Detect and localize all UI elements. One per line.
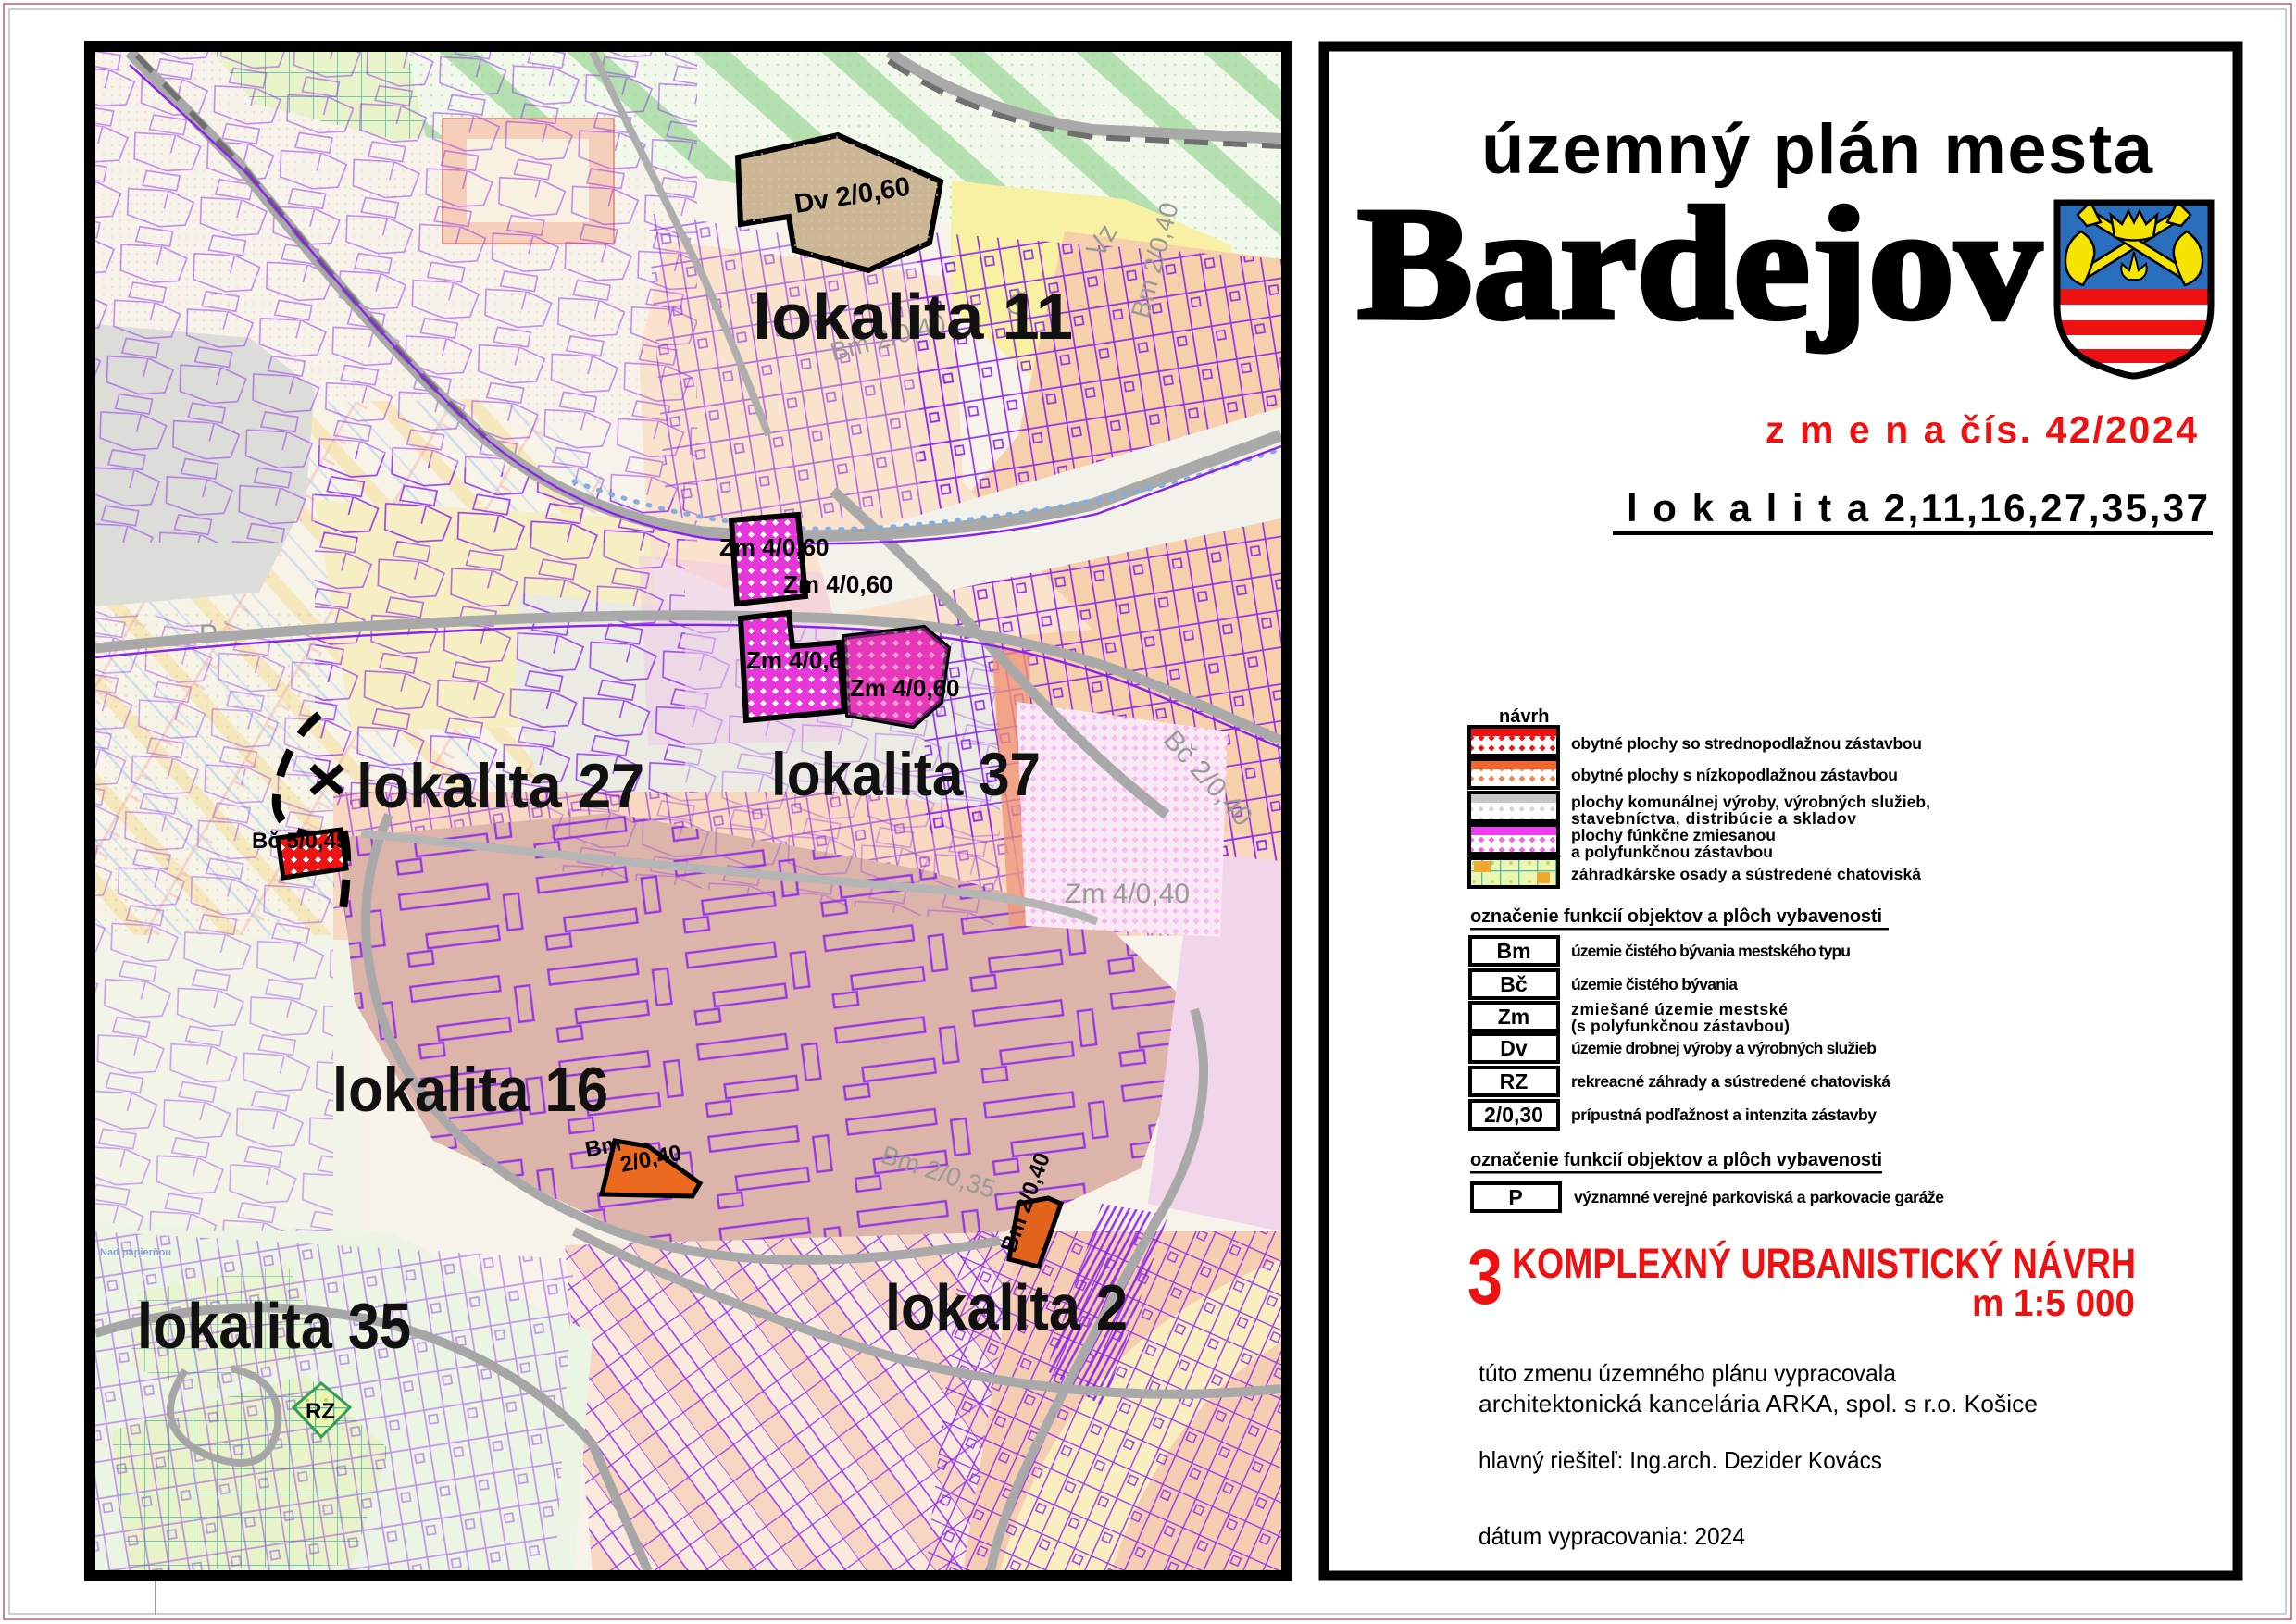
svg-text:Zm 4/0,60: Zm 4/0,60 (719, 533, 830, 561)
svg-text:dátum vypracovania: 2024: dátum vypracovania: 2024 (1479, 1522, 1745, 1550)
svg-text:a polyfunkčnou zástavbou: a polyfunkčnou zástavbou (1571, 843, 1773, 861)
svg-text:Bm: Bm (1496, 939, 1530, 963)
svg-text:označenie funkcií objektov a p: označenie funkcií objektov a plôch vybav… (1470, 906, 1882, 927)
svg-text:stavebníctva, distribúcie a sk: stavebníctva, distribúcie a skladov (1571, 809, 1856, 828)
svg-text:Zm 4/0,40: Zm 4/0,40 (1065, 879, 1190, 909)
svg-text:lokalita 27: lokalita 27 (356, 751, 644, 821)
svg-text:záhradkárske osady a sústreden: záhradkárske osady a sústredené chatovis… (1571, 865, 1921, 883)
svg-text:architektonická kancelária ARK: architektonická kancelária ARKA, spol. s… (1479, 1390, 2038, 1418)
svg-text:územie čistého bývania mestské: územie čistého bývania mestského typu (1571, 942, 1851, 960)
svg-text:lokalita 16: lokalita 16 (332, 1055, 608, 1125)
svg-text:návrh: návrh (1499, 706, 1549, 727)
svg-text:označenie funkcií objektov a p: označenie funkcií objektov a plôch vybav… (1470, 1150, 1882, 1170)
svg-text:KOMPLEXNÝ URBANISTICKÝ NÁVRH: KOMPLEXNÝ URBANISTICKÝ NÁVRH (1512, 1240, 2136, 1287)
svg-text:Bč 5/0,45: Bč 5/0,45 (252, 829, 348, 854)
svg-text:RZ: RZ (306, 1399, 335, 1424)
svg-text:obytné plochy s nízkopodlažnou: obytné plochy s nízkopodlažnou zástavbou (1571, 766, 1898, 784)
svg-text:hlavný riešiteľ: Ing.arch. Dez: hlavný riešiteľ: Ing.arch. Dezider Kovác… (1479, 1446, 1882, 1474)
svg-text:lokalita 2: lokalita 2 (885, 1271, 1128, 1343)
svg-text:obytné plochy so strednopodlaž: obytné plochy so strednopodlažnou zástav… (1571, 734, 1922, 753)
svg-text:Bardejov: Bardejov (1357, 174, 2041, 353)
svg-text:P: P (1508, 1185, 1522, 1209)
svg-text:Zm 4/0,60: Zm 4/0,60 (783, 570, 893, 598)
svg-text:lokalita 37: lokalita 37 (771, 740, 1041, 808)
svg-text:územie drobnej výroby a výrobn: územie drobnej výroby a výrobných služie… (1571, 1039, 1877, 1057)
svg-text:lokalita 11: lokalita 11 (753, 281, 1073, 353)
svg-text:m 1:5 000: m 1:5 000 (1972, 1281, 2135, 1324)
svg-text:lokalita 35: lokalita 35 (137, 1290, 411, 1362)
svg-text:(s polyfunkčnou zástavbou): (s polyfunkčnou zástavbou) (1571, 1017, 1790, 1035)
svg-text:prípustná podľažnost a intenzi: prípustná podľažnost a intenzita zástavb… (1571, 1106, 1877, 1124)
svg-text:Zm 4/0,60: Zm 4/0,60 (850, 674, 960, 702)
svg-text:Nad papierňou: Nad papierňou (100, 1247, 171, 1258)
svg-text:rekreacné záhrady a sústredené: rekreacné záhrady a sústredené chatovisk… (1571, 1072, 1890, 1091)
svg-text:územie čistého bývania: územie čistého bývania (1571, 975, 1738, 993)
svg-text:významné verejné parkoviská a: významné verejné parkoviská a parkovacie… (1574, 1188, 1944, 1206)
svg-text:Zm: Zm (1498, 1005, 1530, 1029)
svg-text:plochy komunálnej výroby, výro: plochy komunálnej výroby, výrobných služ… (1571, 793, 1930, 811)
svg-text:RZ: RZ (1500, 1069, 1529, 1093)
svg-text:zmiešané územie mestské: zmiešané územie mestské (1571, 1000, 1788, 1018)
svg-text:3: 3 (1467, 1233, 1503, 1320)
svg-text:Zm 4/0,60: Zm 4/0,60 (746, 646, 856, 674)
svg-text:Dv: Dv (1500, 1036, 1528, 1060)
svg-text:túto zmenu územného plánu vypr: túto zmenu územného plánu vypracovala (1479, 1359, 1897, 1387)
svg-text:plochy fúnkčne zmiesanou: plochy fúnkčne zmiesanou (1571, 826, 1776, 844)
svg-text:Bč: Bč (1500, 972, 1528, 996)
svg-text:2/0,30: 2/0,30 (1484, 1103, 1543, 1127)
